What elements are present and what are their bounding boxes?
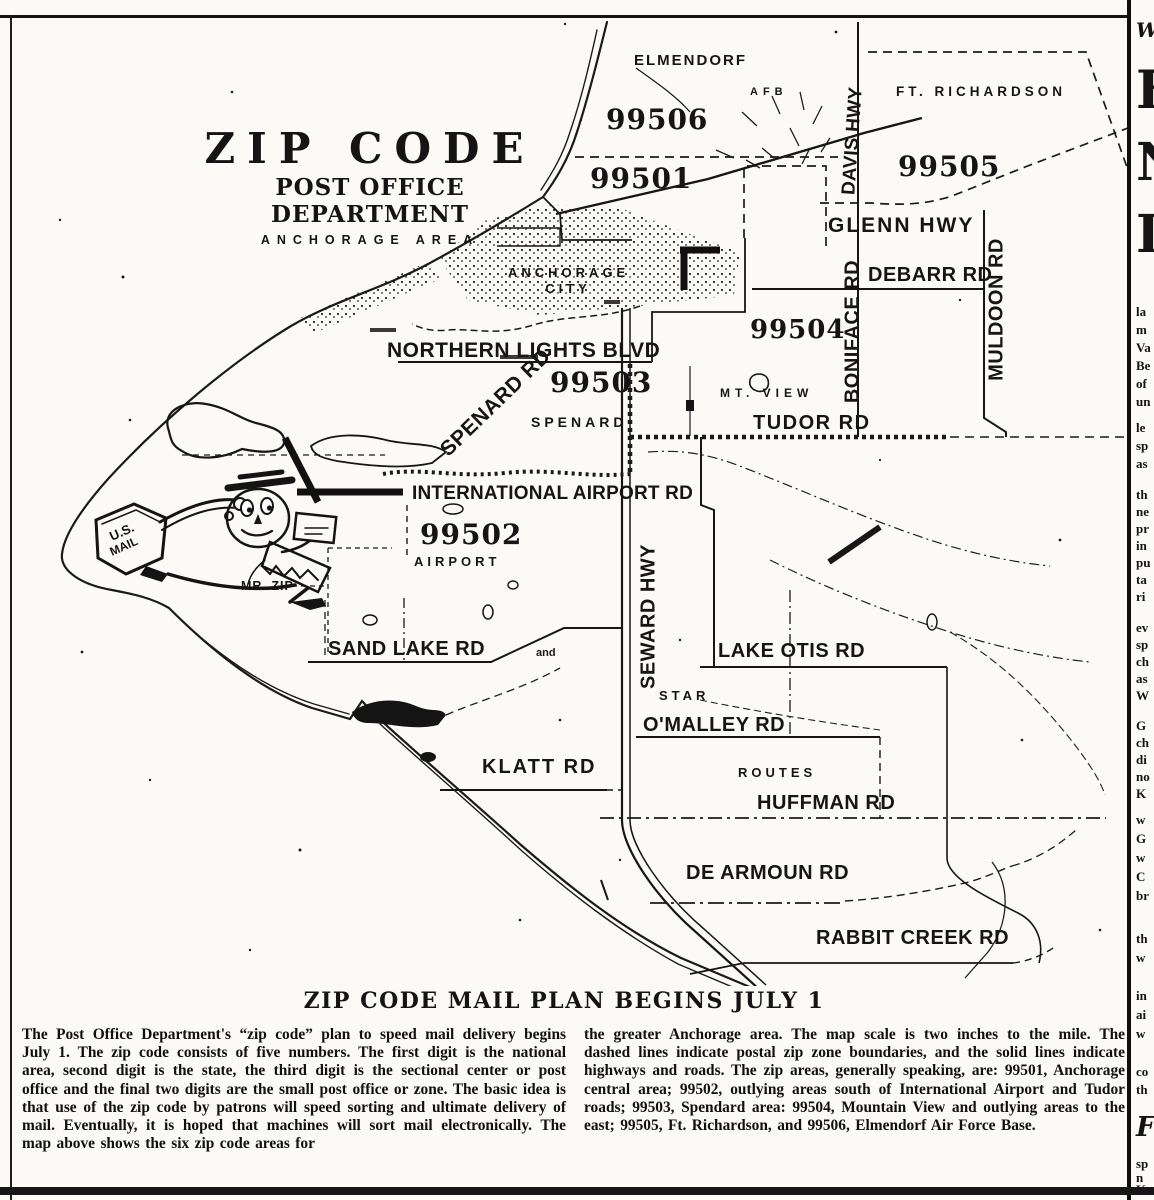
- label-star: STAR: [659, 688, 709, 703]
- map-title-block: ZIP CODE POST OFFICE DEPARTMENT ANCHORAG…: [180, 128, 560, 247]
- text-fragment: N: [1136, 132, 1154, 193]
- label-klatt-rd: KLATT RD: [482, 756, 597, 779]
- label-huffman-rd: HUFFMAN RD: [757, 792, 895, 815]
- label-lake-otis-rd: LAKE OTIS RD: [718, 640, 865, 663]
- map-title: ZIP CODE: [180, 128, 560, 170]
- text-fragment: co: [1136, 1064, 1148, 1080]
- text-fragment: G: [1136, 831, 1146, 847]
- adjacent-column-left: ·t-e-s-ae-d-r-lt-es-ne-tres: [0, 20, 9, 1187]
- text-fragment: la: [1136, 304, 1146, 320]
- newspaper-page: U.S. MAIL: [0, 0, 1154, 1200]
- text-fragment: W: [1136, 18, 1154, 42]
- label-afb: AFB: [750, 86, 788, 98]
- label-mt-view: MT. VIEW: [720, 386, 813, 400]
- text-fragment: sp: [1136, 438, 1148, 454]
- label-and: and: [536, 647, 556, 659]
- label-tudor-rd: TUDOR RD: [753, 412, 871, 435]
- right-column-rule: [1127, 0, 1131, 1200]
- text-fragment: th: [1136, 487, 1148, 503]
- text-fragment: pu: [1136, 555, 1150, 571]
- caption-heading: ZIP CODE MAIL PLAN BEGINS JULY 1: [0, 988, 1128, 1014]
- text-fragment: F: [1136, 1112, 1154, 1143]
- text-fragment: G: [1136, 718, 1146, 734]
- label-seward-hwy: SEWARD HWY: [638, 542, 661, 692]
- text-fragment: as: [1136, 671, 1148, 687]
- text-fragment: m: [1136, 322, 1147, 338]
- zip-99505: 99505: [898, 150, 1000, 183]
- label-airport: AIRPORT: [414, 554, 501, 569]
- text-fragment: ta: [1136, 572, 1147, 588]
- text-fragment: ne: [1136, 504, 1149, 520]
- adjacent-column-right: WFNIlamVaBeofunlespasthneprinputarievspc…: [1133, 0, 1154, 1187]
- text-fragment: di: [1136, 752, 1147, 768]
- text-fragment: W: [1136, 688, 1149, 704]
- text-fragment: ai: [1136, 1007, 1146, 1023]
- label-ft-richardson: FT. RICHARDSON: [896, 84, 1066, 99]
- label-glenn-hwy: GLENN HWY: [828, 214, 974, 238]
- label-debarr-rd: DEBARR RD: [868, 264, 993, 287]
- text-fragment: le: [1136, 420, 1145, 436]
- text-fragment: th: [1136, 1082, 1148, 1098]
- caption-column-right: the greater Anchorage area. The map scal…: [584, 1026, 1125, 1135]
- text-fragment: ev: [1136, 620, 1148, 636]
- text-fragment: C: [1136, 869, 1145, 885]
- text-fragment: as: [1136, 456, 1148, 472]
- text-fragment: in: [1136, 538, 1147, 554]
- top-rule: [0, 15, 1130, 18]
- map-area-label: ANCHORAGE AREA: [180, 233, 560, 247]
- text-fragment: Be: [1136, 358, 1150, 374]
- zip-99502: 99502: [420, 518, 522, 551]
- text-fragment: ri: [1136, 589, 1145, 605]
- text-fragment: w: [1136, 950, 1145, 966]
- label-omalley-rd: O'MALLEY RD: [643, 714, 785, 737]
- label-elmendorf: ELMENDORF: [634, 52, 747, 69]
- text-fragment: Va: [1136, 340, 1151, 356]
- text-fragment: pr: [1136, 521, 1149, 537]
- text-fragment: ch: [1136, 735, 1149, 751]
- text-fragment: th: [1136, 931, 1148, 947]
- label-routes: ROUTES: [738, 765, 816, 780]
- caption-column-left: The Post Office Department's “zip code” …: [22, 1026, 566, 1153]
- label-sand-lake-rd: SAND LAKE RD: [328, 638, 485, 661]
- text-fragment: K: [1136, 786, 1146, 802]
- label-international-airport-rd: INTERNATIONAL AIRPORT RD: [412, 483, 693, 505]
- zip-99506: 99506: [606, 103, 708, 136]
- text-fragment: ch: [1136, 654, 1149, 670]
- map-subtitle: POST OFFICE DEPARTMENT: [180, 174, 560, 228]
- text-fragment: w: [1136, 812, 1145, 828]
- zip-99503: 99503: [550, 366, 652, 399]
- label-spenard: SPENARD: [531, 414, 627, 430]
- text-fragment: F: [1136, 60, 1154, 121]
- label-mr-zip: MR. ZIP: [241, 579, 294, 593]
- label-muldoon-rd: MULDOON RD: [986, 235, 1009, 385]
- label-de-armoun-rd: DE ARMOUN RD: [686, 862, 849, 885]
- zip-99504: 99504: [750, 315, 845, 345]
- zip-99501: 99501: [590, 162, 692, 195]
- text-fragment: w: [1136, 1026, 1145, 1042]
- text-fragment: sp: [1136, 637, 1148, 653]
- text-fragment: in: [1136, 988, 1147, 1004]
- text-fragment: no: [1136, 769, 1150, 785]
- left-column-rule: [10, 15, 12, 1200]
- text-fragment: I: [1136, 204, 1154, 265]
- text-fragment: br: [1136, 888, 1149, 904]
- bottom-rule: [0, 1187, 1154, 1195]
- label-anchorage-city: ANCHORAGE CITY: [508, 265, 628, 296]
- label-boniface-rd: BONIFACE RD: [842, 252, 865, 412]
- text-fragment: of: [1136, 376, 1147, 392]
- text-fragment: un: [1136, 394, 1150, 410]
- text-fragment: w: [1136, 850, 1145, 866]
- label-rabbit-creek-rd: RABBIT CREEK RD: [816, 927, 1009, 950]
